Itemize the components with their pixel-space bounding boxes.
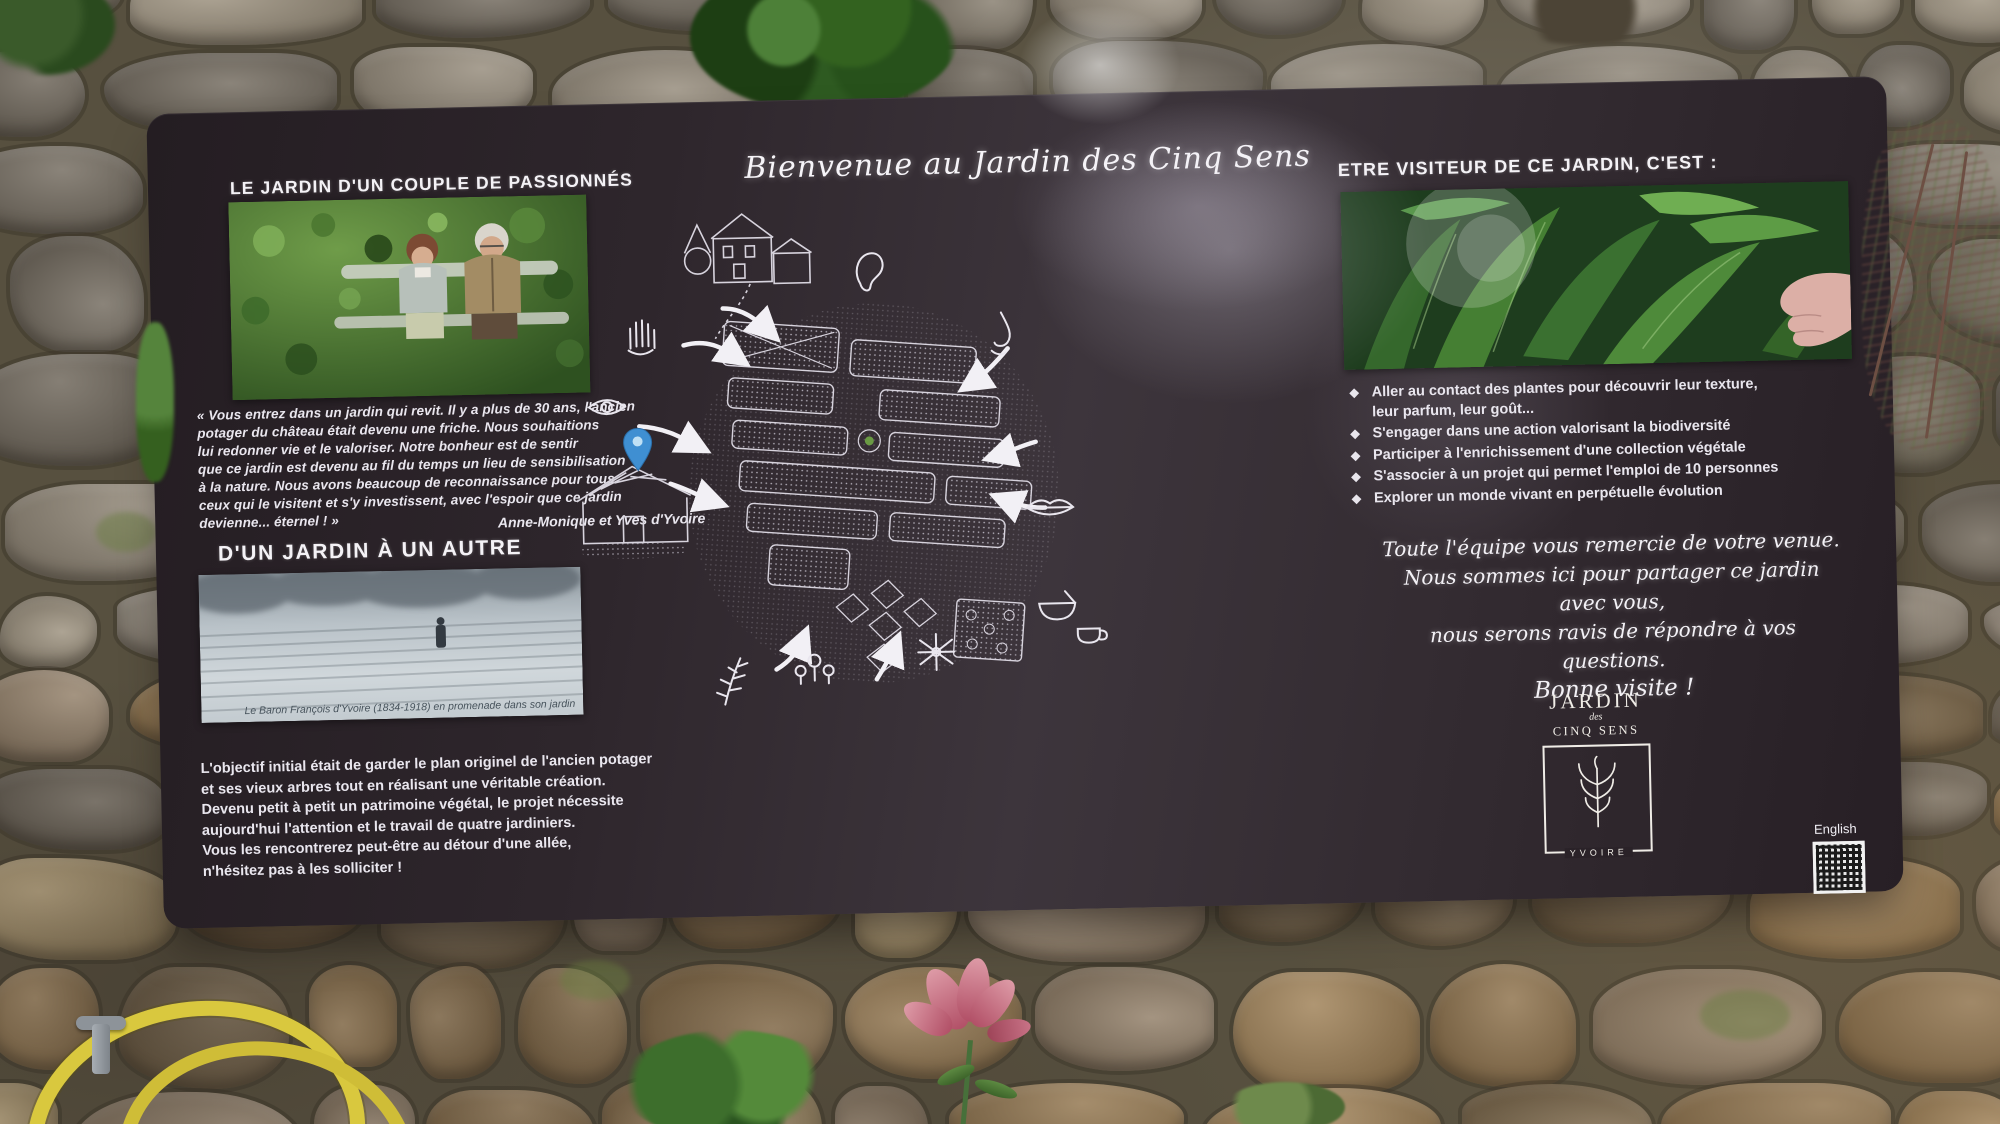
eye-icon (589, 400, 625, 415)
wall-stone (1992, 677, 2000, 753)
logo-city: YVOIRE (1547, 846, 1651, 858)
garden-logo: JARDIN des CINQ SENS YVOIRE (1527, 687, 1667, 868)
list-item: Aller au contact des plantes pour découv… (1348, 375, 1777, 423)
wall-stone (1362, 0, 1483, 46)
wall-stone (0, 146, 143, 235)
diamond-bullet-icon (1349, 388, 1359, 398)
wall-stone (1996, 359, 2000, 471)
wall-stone (426, 1090, 594, 1124)
wall-stone (0, 858, 176, 960)
wall-stone (1898, 1091, 2000, 1124)
leaf-debris (1225, 1082, 1345, 1124)
lily-stem (960, 1040, 973, 1124)
hedge-maze (677, 292, 1071, 695)
wall-stone (1922, 484, 2000, 583)
wall-stone (1964, 46, 2000, 134)
wall-stone (1704, 0, 1794, 50)
history-paragraph: L'objectif initial était de garder le pl… (200, 749, 654, 882)
wall-stone (10, 236, 144, 352)
plant-touch-photo (1340, 181, 1852, 370)
wall-stone (1994, 768, 2000, 845)
section-heading-garden: D'UN JARDIN À UN AUTRE (218, 536, 523, 567)
diamond-bullet-icon (1351, 451, 1361, 461)
wall-stone (1976, 857, 2000, 948)
photo-scene: LE JARDIN D'UN COUPLE DE PASSIONNÉS (0, 0, 2000, 1124)
plant-touch-photo-image (1340, 181, 1852, 370)
garden-info-sign: LE JARDIN D'UN COUPLE DE PASSIONNÉS (146, 76, 1903, 929)
diamond-bullet-icon (1352, 494, 1362, 504)
historic-photo: Le Baron François d'Yvoire (1834-1918) e… (198, 567, 583, 723)
wall-stone (1035, 967, 1214, 1071)
wall-stone (1984, 597, 2000, 659)
wall-stone (1915, 0, 2000, 43)
fern-icon (716, 658, 748, 705)
location-pin-icon (623, 428, 652, 471)
wall-stone (1462, 1084, 1653, 1124)
diamond-bullet-icon (1351, 472, 1361, 482)
edge-plant (136, 322, 174, 482)
message-line: nous serons ravis de répondre à vos ques… (1383, 612, 1844, 680)
visitor-bullet-list: Aller au contact des plantes pour découv… (1348, 375, 1779, 511)
wall-stone (1839, 972, 2000, 1082)
water-tap (92, 1024, 110, 1074)
caption-line: en promenade dans son jardin (433, 698, 575, 713)
diamond-bullet-icon (1350, 429, 1360, 439)
welcome-title: Bienvenue au Jardin des Cinq Sens (707, 138, 1348, 187)
moss-patch (560, 960, 630, 1000)
wall-stone (1430, 964, 1576, 1087)
wall-stone (376, 0, 590, 38)
welcome-message: Toute l'équipe vous remercie de votre ve… (1381, 525, 1845, 709)
wall-stone (1661, 1083, 1891, 1124)
wall-stone (1216, 0, 1342, 35)
wall-stone (0, 769, 169, 850)
mortar-and-pestle-icon (1039, 591, 1076, 620)
wall-stone (1233, 972, 1421, 1095)
wall-stone (0, 596, 97, 668)
espalier-tree-icon (1566, 754, 1630, 829)
message-line: Nous sommes ici pour partager ce jardin … (1381, 554, 1842, 622)
lily-flower (878, 948, 1058, 1124)
castle-icon (684, 213, 814, 340)
logo-frame: YVOIRE (1542, 743, 1652, 853)
hand-icon (628, 320, 655, 355)
wall-stone (410, 966, 501, 1079)
wall-stone (0, 670, 109, 761)
garden-map-illustration (568, 183, 1339, 714)
moss-patch (96, 512, 156, 552)
wall-stone (130, 0, 362, 45)
couple-photo (228, 194, 590, 400)
section-heading-visitor: ETRE VISITEUR DE CE JARDIN, C'EST : (1338, 152, 1718, 181)
wall-stone (1812, 0, 1901, 34)
qr-code (1813, 841, 1866, 894)
ear-icon (856, 253, 883, 291)
logo-subtitle: CINQ SENS (1528, 722, 1664, 740)
teacup-icon (1078, 628, 1107, 643)
barn-icon (576, 465, 692, 559)
language-label: English (1804, 821, 1866, 837)
couple-photo-image (228, 194, 590, 400)
wall-stone (1050, 0, 1202, 40)
moss-patch (1700, 990, 1790, 1040)
